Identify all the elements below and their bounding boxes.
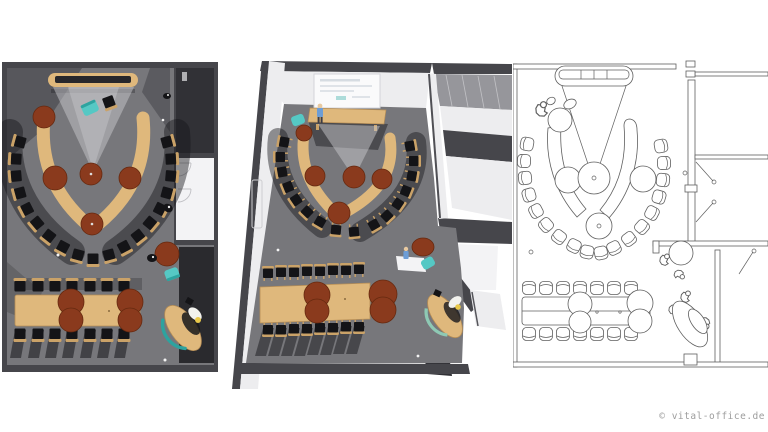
- floor-mark: [529, 250, 533, 254]
- person-blue-2: [403, 247, 408, 259]
- presentation-board: [555, 66, 633, 86]
- long-table-group: [522, 282, 653, 341]
- v-table-chairs: [517, 136, 670, 260]
- side-round-table-group: [660, 241, 693, 279]
- v-table: [547, 108, 656, 239]
- wall-screen: [314, 74, 380, 108]
- panel-top-down-render: [2, 62, 218, 372]
- panel-perspective-render: [228, 58, 514, 392]
- panel-line-drawing: [513, 60, 768, 378]
- copyright-text: © vital-office.de: [659, 411, 765, 422]
- floorplan-sheet: © vital-office.de: [0, 0, 768, 432]
- door-swings: [696, 162, 756, 274]
- reception-counter: [665, 291, 716, 365]
